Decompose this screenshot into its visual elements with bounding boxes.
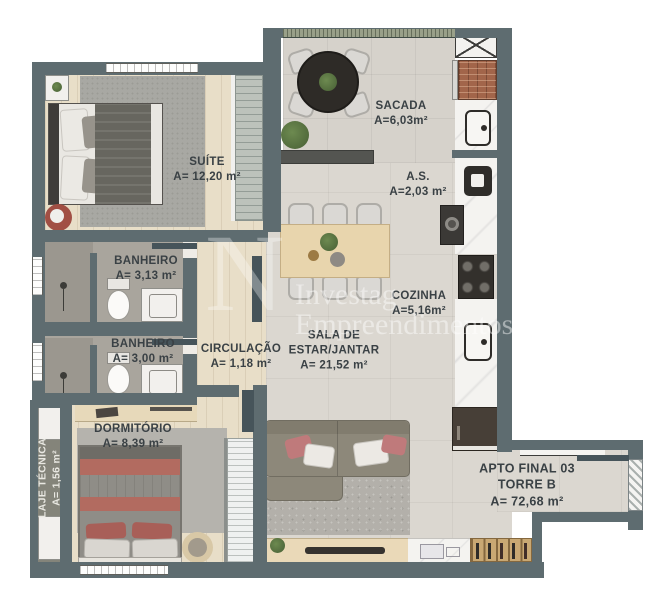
room-name: DORMITÓRIO bbox=[94, 422, 172, 437]
plant-icon bbox=[270, 538, 285, 553]
window bbox=[32, 257, 43, 295]
bed-quilt bbox=[80, 475, 180, 497]
laundry-basin bbox=[471, 174, 484, 187]
slab-vent bbox=[38, 406, 62, 440]
washing-machine bbox=[440, 205, 464, 245]
shower-head-icon bbox=[60, 282, 67, 289]
room-area: A= 1,18 m² bbox=[201, 357, 281, 372]
pouf-top bbox=[188, 538, 207, 557]
room-label-cozinha: COZINHA A=5,16m² bbox=[392, 289, 447, 319]
room-area: A= 8,39 m² bbox=[94, 437, 172, 452]
room-name: COZINHA bbox=[392, 289, 447, 304]
room-area: A= 12,20 m² bbox=[173, 170, 241, 185]
wall bbox=[263, 28, 281, 232]
apartment-line1: APTO FINAL 03 bbox=[479, 461, 575, 477]
sink-basin bbox=[149, 294, 177, 318]
wall bbox=[497, 28, 512, 452]
plant-icon bbox=[320, 233, 338, 251]
room-label-sala: SALA DE ESTAR/JANTAR A= 21,52 m² bbox=[289, 329, 380, 374]
wall bbox=[253, 385, 267, 568]
suite-door bbox=[252, 256, 262, 322]
room-label-circulacao: CIRCULAÇÃO A= 1,18 m² bbox=[201, 342, 281, 372]
room-name: SALA DE bbox=[289, 329, 380, 344]
room-name: BANHEIRO bbox=[111, 337, 175, 352]
bed-headboard bbox=[49, 104, 59, 204]
sideboard-decor bbox=[420, 544, 444, 559]
wall bbox=[532, 512, 643, 522]
plant-icon bbox=[319, 73, 337, 91]
wall bbox=[32, 322, 197, 336]
wall bbox=[497, 440, 643, 450]
room-name: LAJE TÉCNICA bbox=[36, 438, 50, 518]
shower-stem bbox=[63, 289, 64, 311]
floor-plan: SUÍTE A= 12,20 m² BANHEIRO A= 3,13 m² BA… bbox=[0, 0, 660, 600]
dining-table bbox=[280, 224, 390, 278]
plant-icon bbox=[281, 121, 309, 149]
apartment-line2: TORRE B bbox=[479, 477, 575, 493]
washer-door-icon bbox=[445, 217, 459, 231]
table-decor bbox=[308, 250, 319, 261]
sideboard-marble bbox=[408, 538, 470, 562]
faucet-icon bbox=[481, 339, 487, 345]
vanity-sink bbox=[141, 288, 183, 322]
wall bbox=[32, 230, 268, 242]
balcony-bench bbox=[278, 150, 374, 164]
balcony-railing bbox=[283, 29, 455, 38]
entry-door-opening bbox=[628, 459, 643, 511]
bedroom2-closet bbox=[227, 438, 255, 563]
toilet bbox=[107, 290, 130, 320]
sofa bbox=[265, 420, 410, 477]
wine-bottle-icon bbox=[488, 543, 491, 559]
room-label-banheiro1: BANHEIRO A= 3,13 m² bbox=[114, 254, 178, 284]
slab-vent bbox=[38, 516, 62, 560]
wine-bottle-icon bbox=[500, 543, 503, 559]
room-name: CIRCULAÇÃO bbox=[201, 342, 281, 357]
room-area: A= 3,13 m² bbox=[114, 269, 178, 284]
shower-head-icon bbox=[60, 372, 67, 379]
tv bbox=[305, 547, 385, 554]
room-name: BANHEIRO bbox=[114, 254, 178, 269]
suite-wardrobe bbox=[235, 75, 263, 221]
fridge-base bbox=[453, 446, 497, 450]
toilet bbox=[107, 364, 130, 394]
barbecue-grill bbox=[458, 60, 497, 100]
bed-sheet-fold bbox=[151, 104, 162, 204]
side-table-decor bbox=[50, 209, 64, 223]
wall bbox=[30, 400, 72, 408]
dining-chair bbox=[288, 276, 314, 300]
faucet-icon bbox=[481, 125, 487, 131]
bed-blanket bbox=[95, 104, 151, 204]
refrigerator bbox=[452, 407, 498, 451]
bed-stripe bbox=[80, 497, 180, 511]
table-decor bbox=[330, 252, 345, 267]
room-label-banheiro2: BANHEIRO A= 3,00 m² bbox=[111, 337, 175, 367]
sink-basin bbox=[149, 370, 177, 394]
apartment-title: APTO FINAL 03 TORRE B A= 72,68 m² bbox=[479, 461, 575, 510]
room-label-suite: SUÍTE A= 12,20 m² bbox=[173, 155, 241, 185]
plant-icon bbox=[52, 82, 62, 92]
wall bbox=[90, 253, 97, 322]
wine-rack bbox=[470, 538, 532, 562]
dining-chair bbox=[356, 276, 382, 300]
shower1 bbox=[45, 242, 93, 322]
room-area: A=6,03m² bbox=[374, 114, 428, 129]
bedroom2-bed bbox=[78, 445, 182, 566]
room-label-as: A.S. A=2,03 m² bbox=[389, 170, 446, 200]
sideboard-decor bbox=[446, 547, 460, 557]
wall bbox=[90, 345, 97, 405]
desk-decor bbox=[150, 407, 192, 411]
room-name: ESTAR/JANTAR bbox=[289, 344, 380, 359]
apartment-area: A= 72,68 m² bbox=[479, 493, 575, 509]
room-area: A= 21,52 m² bbox=[289, 358, 380, 373]
wall bbox=[452, 150, 512, 158]
sofa-chaise bbox=[265, 477, 343, 501]
entry-door bbox=[577, 455, 629, 461]
sofa-pillow bbox=[303, 443, 336, 469]
laundry-sink bbox=[464, 166, 492, 196]
kitchen-sink bbox=[465, 110, 491, 146]
room-name: SACADA bbox=[374, 99, 428, 114]
wall bbox=[197, 385, 239, 397]
wine-bottle-icon bbox=[476, 543, 479, 559]
room-name: SUÍTE bbox=[173, 155, 241, 170]
suite-bed bbox=[48, 103, 163, 205]
window bbox=[106, 63, 198, 73]
bed-stripe bbox=[80, 459, 180, 475]
kitchen-sink-2 bbox=[464, 323, 492, 361]
room-area: A= 1,56 m² bbox=[50, 438, 64, 518]
bathroom1-door bbox=[152, 243, 197, 249]
wine-bottle-icon bbox=[512, 543, 515, 559]
bed-accent-pillow bbox=[86, 522, 127, 540]
bedroom2-door bbox=[242, 390, 254, 432]
window bbox=[80, 565, 168, 575]
wine-bottle-icon bbox=[524, 543, 527, 559]
room-label-dormitorio: DORMITÓRIO A= 8,39 m² bbox=[94, 422, 172, 452]
room-label-sacada: SACADA A=6,03m² bbox=[374, 99, 428, 129]
room-area: A= 3,00 m² bbox=[111, 352, 175, 367]
fridge-handle bbox=[457, 426, 460, 440]
window bbox=[32, 343, 43, 381]
cooktop bbox=[458, 255, 494, 299]
sofa-pillow bbox=[381, 434, 408, 456]
bed-accent-pillow bbox=[132, 522, 173, 540]
room-area: A=5,16m² bbox=[392, 304, 447, 319]
room-label-laje: LAJE TÉCNICA A= 1,56 m² bbox=[36, 438, 63, 518]
sofa-seam bbox=[337, 421, 338, 476]
room-area: A=2,03 m² bbox=[389, 185, 446, 200]
room-name: A.S. bbox=[389, 170, 446, 185]
dining-chair bbox=[322, 276, 348, 300]
